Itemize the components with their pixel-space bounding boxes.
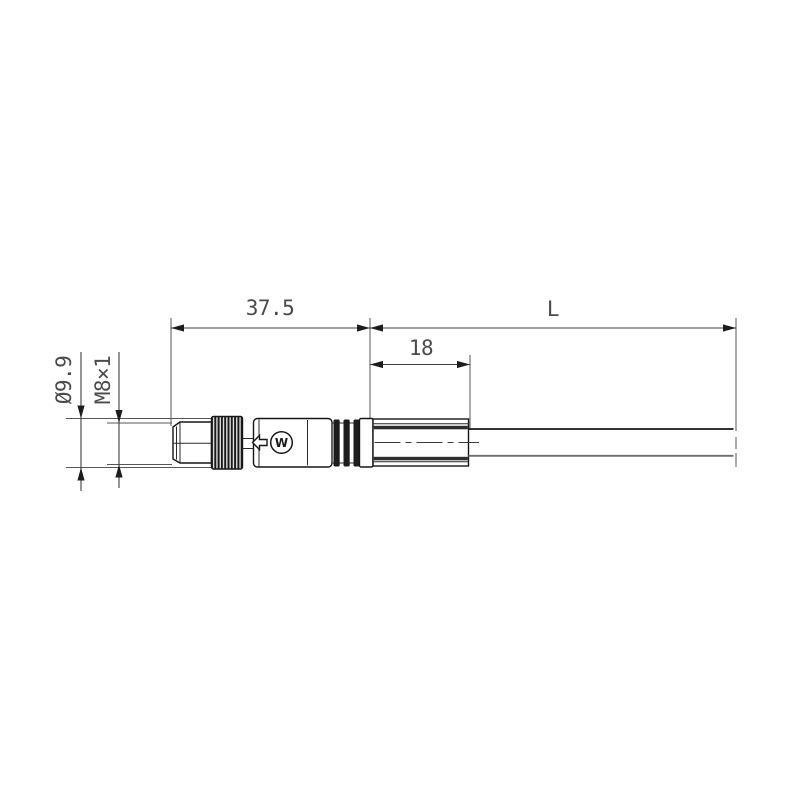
arrowhead-up-icon <box>77 468 84 481</box>
strain-relief-ring <box>354 420 360 467</box>
connector-neck <box>243 439 255 449</box>
dimension-connector-length: 37.5 <box>171 296 370 332</box>
dim-label-connector-length: 37.5 <box>246 296 295 320</box>
dim-label-boot-length: 18 <box>409 336 433 360</box>
technical-drawing: 37.5 L 18 Ø9.9 M8×1 <box>0 0 800 800</box>
brand-logo-mark-icon: W <box>275 436 288 450</box>
dimension-cable-length: L <box>370 297 736 332</box>
thread-tip-outline <box>173 422 212 463</box>
strain-relief-collar <box>360 419 374 468</box>
cable <box>469 429 734 456</box>
dimension-boot-length: 18 <box>370 336 470 368</box>
cable-boot <box>373 419 479 466</box>
dim-label-thread-size: M8×1 <box>91 356 115 405</box>
arrowhead-left-icon <box>370 361 383 368</box>
boot-bottom-band <box>374 457 468 461</box>
dim-label-cable-length: L <box>547 297 559 321</box>
connector-thread-tip <box>173 422 212 463</box>
drawing-canvas: 37.5 L 18 Ø9.9 M8×1 <box>0 0 800 800</box>
arrowhead-down-icon <box>77 406 84 419</box>
arrowhead-up-icon <box>115 465 122 478</box>
arrowhead-left-icon <box>370 324 383 331</box>
arrowhead-right-icon <box>357 324 370 331</box>
strain-relief-ring <box>334 420 340 467</box>
arrowhead-right-icon <box>723 324 736 331</box>
dim-label-outer-diameter: Ø9.9 <box>52 356 76 405</box>
dimension-outer-diameter: Ø9.9 <box>52 352 85 491</box>
arrowhead-left-icon <box>171 324 184 331</box>
strain-relief <box>332 419 373 468</box>
boot-top-band <box>374 426 468 430</box>
knurled-nut <box>212 417 243 470</box>
strain-relief-ring <box>344 420 350 467</box>
arrowhead-down-icon <box>115 410 122 423</box>
connector-body: W <box>253 419 333 468</box>
arrowhead-right-icon <box>457 361 470 368</box>
